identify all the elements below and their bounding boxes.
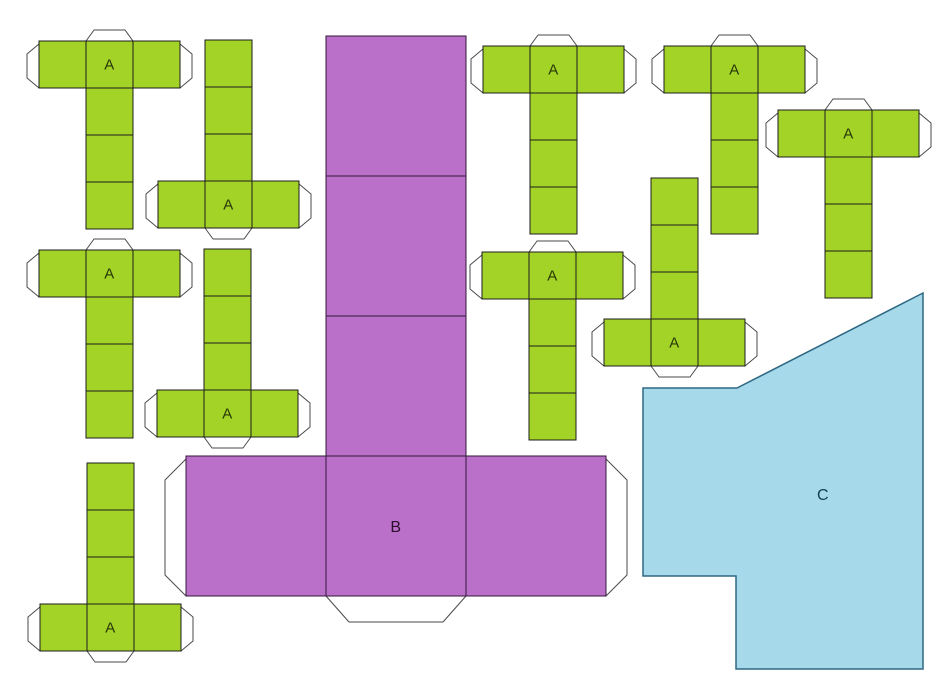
net-column-faces (86, 297, 133, 438)
net-column-faces (326, 36, 466, 456)
glue-tab (326, 596, 466, 622)
net-column-faces (711, 93, 758, 234)
glue-tab (766, 113, 778, 157)
cube-net-a-4: A (766, 99, 931, 298)
glue-tab (529, 241, 576, 252)
net-column-faces (825, 157, 872, 298)
net-label: A (669, 335, 680, 352)
net-column-faces (87, 463, 134, 604)
net-label: A (222, 406, 233, 423)
glue-tab (146, 184, 158, 228)
glue-tab (145, 393, 157, 437)
glue-tab (27, 44, 39, 88)
glue-tab (530, 35, 577, 46)
net-label: A (729, 62, 740, 79)
net-label: A (548, 62, 559, 79)
net-label: A (104, 57, 115, 74)
glue-tab (805, 49, 817, 93)
glue-tab (87, 651, 134, 662)
glue-tab (28, 607, 40, 651)
glue-tab (299, 184, 311, 228)
glue-tab (470, 255, 482, 299)
craft-template-sheet: AAAAAAAAAABC (0, 0, 946, 683)
net-label: B (390, 519, 401, 536)
nets-canvas: AAAAAAAAAABC (0, 0, 946, 683)
glue-tab (298, 393, 310, 437)
cube-net-a-2: A (471, 35, 636, 234)
net-column-faces (530, 93, 577, 234)
net-column-faces (205, 40, 252, 181)
glue-tab (711, 35, 758, 46)
glue-tab (651, 366, 698, 377)
glue-tab (180, 44, 192, 88)
net-column-faces (86, 88, 133, 229)
glue-tab (205, 228, 252, 239)
net-column-faces (651, 178, 698, 319)
shape-c-label: C (817, 487, 829, 504)
glue-tab (180, 253, 192, 297)
glue-tab (919, 113, 931, 157)
glue-tab (86, 239, 133, 250)
net-label: A (105, 620, 116, 637)
net-label: A (547, 268, 558, 285)
net-label: A (223, 197, 234, 214)
net-label: A (843, 126, 854, 143)
glue-tab (204, 437, 251, 448)
glue-tab (825, 99, 872, 110)
net-column-faces (204, 249, 251, 390)
glue-tab (592, 322, 604, 366)
glue-tab (745, 322, 757, 366)
glue-tab (606, 459, 627, 596)
glue-tab (652, 49, 664, 93)
net-label: A (104, 266, 115, 283)
glue-tab (165, 459, 186, 596)
net-column-faces (529, 299, 576, 440)
glue-tab (623, 255, 635, 299)
glue-tab (86, 30, 133, 41)
glue-tab (624, 49, 636, 93)
glue-tab (27, 253, 39, 297)
glue-tab (181, 607, 193, 651)
glue-tab (471, 49, 483, 93)
